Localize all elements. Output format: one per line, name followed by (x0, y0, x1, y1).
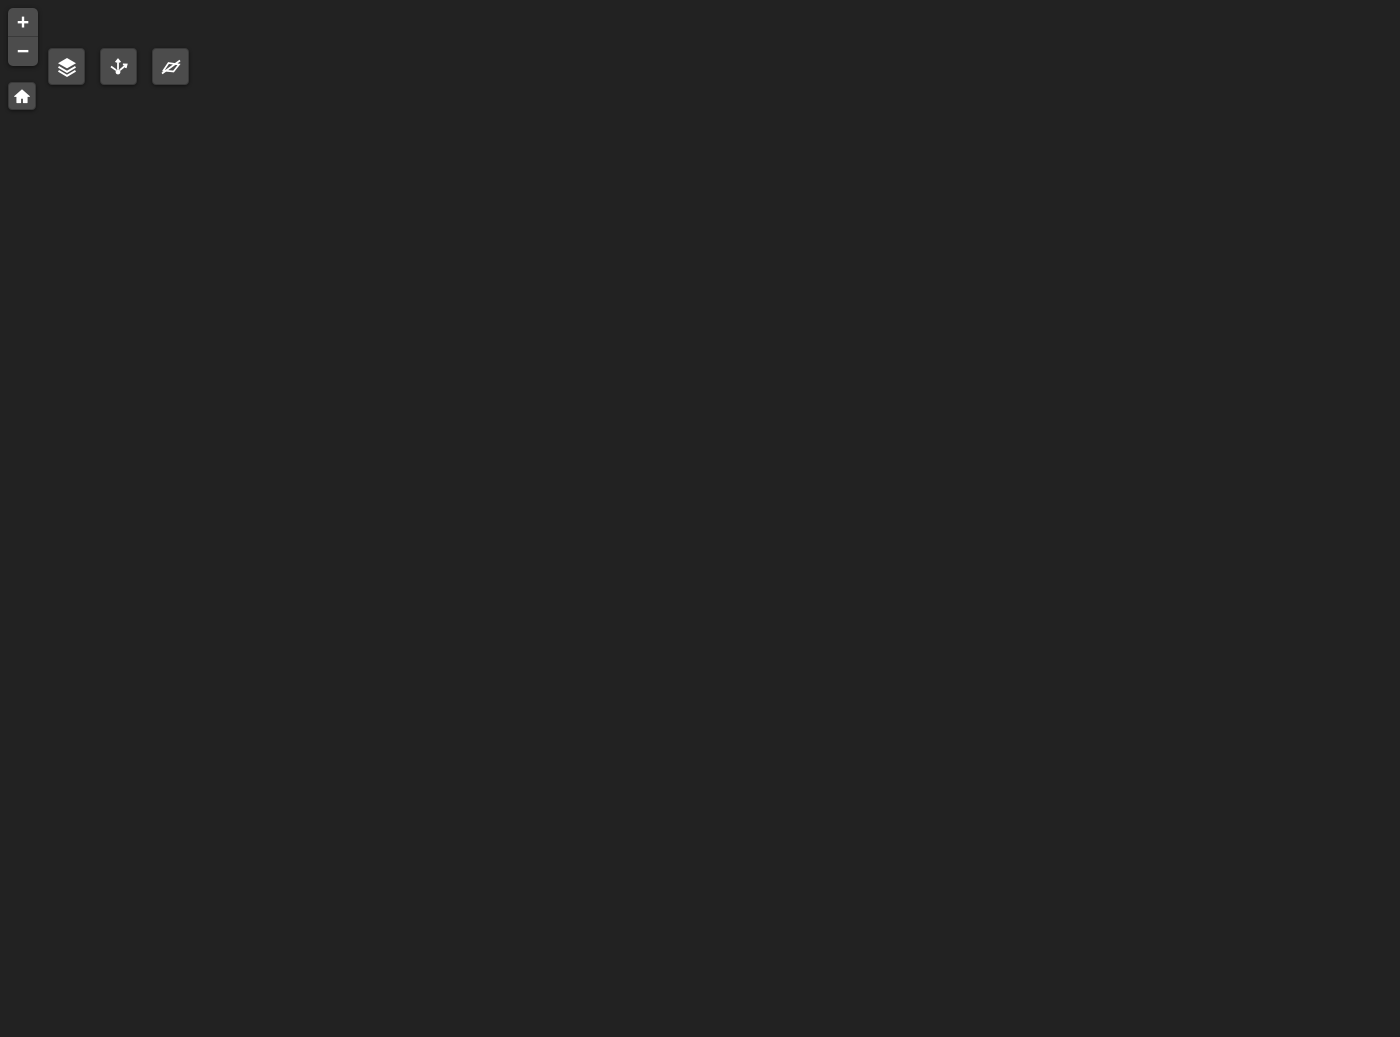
measure-area-icon (159, 55, 183, 79)
layers-button[interactable] (48, 48, 85, 85)
layers-icon (55, 55, 79, 79)
zoom-control: + − (8, 8, 38, 66)
zoom-out-button[interactable]: − (8, 37, 38, 66)
zoom-in-button[interactable]: + (8, 8, 38, 37)
measure-button[interactable] (152, 48, 189, 85)
map-toolbar (48, 48, 189, 85)
share-button[interactable] (100, 48, 137, 85)
map-viewport[interactable]: + − (0, 0, 1400, 1037)
home-icon (12, 86, 32, 106)
satellite-map-canvas[interactable] (0, 0, 1400, 1037)
home-button[interactable] (8, 82, 36, 110)
share-icon (107, 55, 131, 79)
